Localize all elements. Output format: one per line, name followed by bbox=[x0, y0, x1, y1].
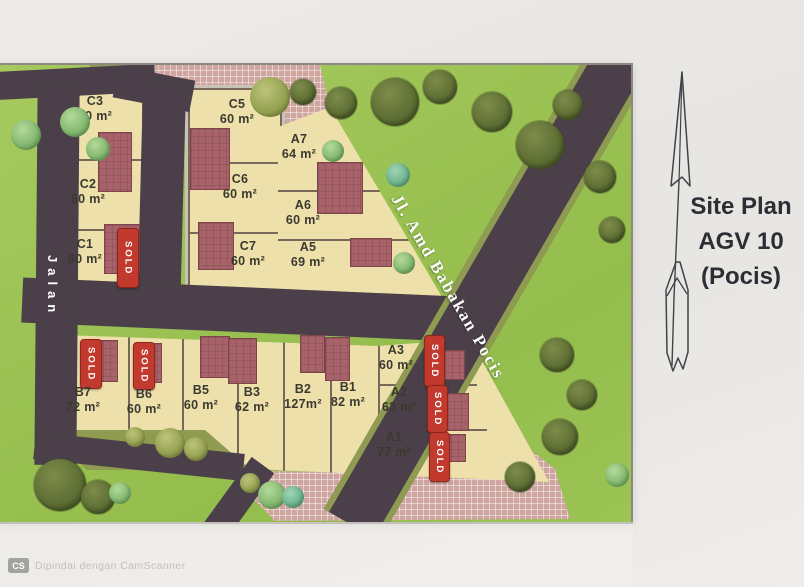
tree-icon bbox=[322, 140, 344, 162]
tree-icon bbox=[282, 486, 304, 508]
lot-B5-label: B560 m² bbox=[173, 383, 229, 413]
building-footprint bbox=[350, 238, 392, 267]
sold-ribbon-A1: SOLD bbox=[429, 432, 450, 482]
tree-icon bbox=[240, 473, 260, 493]
lot-A2-label: A263 m² bbox=[371, 385, 427, 415]
tree-icon bbox=[386, 163, 410, 187]
building-footprint bbox=[300, 335, 325, 373]
sold-ribbon-B7: SOLD bbox=[80, 339, 102, 389]
tree-icon bbox=[393, 252, 415, 274]
plan-title-line3: (Pocis) bbox=[684, 260, 798, 295]
tree-icon bbox=[34, 459, 86, 511]
tree-icon bbox=[11, 120, 41, 150]
building-footprint bbox=[325, 337, 350, 381]
lot-A3-label: A360 m² bbox=[368, 343, 424, 373]
sold-ribbon-B6: SOLD bbox=[133, 342, 155, 390]
tree-icon bbox=[567, 380, 597, 410]
lot-C2-label: C260 m² bbox=[60, 177, 116, 207]
lot-C1-label: C160 m² bbox=[57, 237, 113, 267]
tree-icon bbox=[605, 463, 629, 487]
tree-icon bbox=[184, 437, 208, 461]
tree-icon bbox=[109, 482, 131, 504]
sold-ribbon-A2: SOLD bbox=[427, 385, 448, 433]
sold-ribbon-C1: SOLD bbox=[117, 228, 139, 288]
tree-icon bbox=[505, 462, 535, 492]
tree-icon bbox=[250, 77, 290, 117]
camscanner-watermark: CS Dipindai dengan CamScanner bbox=[8, 558, 186, 573]
tree-icon bbox=[325, 87, 357, 119]
tree-icon bbox=[155, 428, 185, 458]
tree-icon bbox=[542, 419, 578, 455]
lot-A5-label: A569 m² bbox=[280, 240, 336, 270]
building-footprint bbox=[200, 336, 230, 378]
paper-margin bbox=[0, 522, 633, 587]
tree-icon bbox=[553, 90, 583, 120]
tree-icon bbox=[599, 217, 625, 243]
lot-C6-label: C660 m² bbox=[212, 172, 268, 202]
lot-B6-label: B660 m² bbox=[116, 387, 172, 417]
tree-icon bbox=[584, 161, 616, 193]
tree-icon bbox=[86, 137, 110, 161]
tree-icon bbox=[125, 427, 145, 447]
plan-title-line2: AGV 10 bbox=[684, 225, 798, 260]
plan-title: Site Plan AGV 10 (Pocis) bbox=[684, 190, 798, 294]
tree-icon bbox=[540, 338, 574, 372]
plan-title-line1: Site Plan bbox=[684, 190, 798, 225]
lot-A1-label: A177 m² bbox=[366, 430, 422, 460]
site-plan-map: Jl. Amd Babakan Pocis Jalan SOLD SOLD SO… bbox=[0, 63, 633, 524]
lot-A6-label: A660 m² bbox=[275, 198, 331, 228]
tree-icon bbox=[371, 78, 419, 126]
tree-icon bbox=[423, 70, 457, 104]
sold-ribbon-A3: SOLD bbox=[424, 335, 445, 387]
lot-A7-label: A764 m² bbox=[271, 132, 327, 162]
camscanner-watermark-text: Dipindai dengan CamScanner bbox=[35, 560, 186, 572]
lot-C7-label: C760 m² bbox=[220, 239, 276, 269]
lot-B7-label: B772 m² bbox=[55, 385, 111, 415]
tree-icon bbox=[516, 121, 564, 169]
tree-icon bbox=[290, 79, 316, 105]
building-footprint bbox=[228, 338, 257, 384]
lot-B3-label: B362 m² bbox=[224, 385, 280, 415]
tree-icon bbox=[60, 107, 90, 137]
lot-B1-label: B182 m² bbox=[320, 380, 376, 410]
tree-icon bbox=[472, 92, 512, 132]
camscanner-badge-icon: CS bbox=[8, 558, 29, 573]
scanned-site-plan-page: Jl. Amd Babakan Pocis Jalan SOLD SOLD SO… bbox=[0, 0, 804, 587]
